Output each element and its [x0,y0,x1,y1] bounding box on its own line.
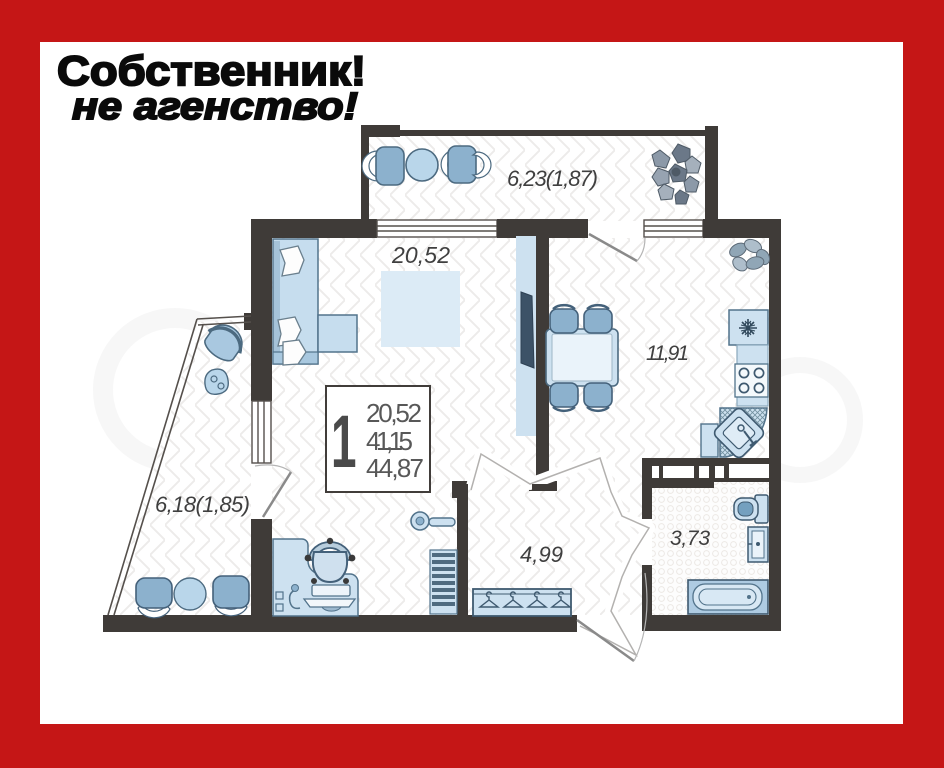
svg-text:6,23(1,87): 6,23(1,87) [507,166,598,191]
svg-text:4,99: 4,99 [520,542,563,567]
svg-text:41,15: 41,15 [366,426,413,456]
svg-text:3,73: 3,73 [670,527,710,550]
svg-text:44,87: 44,87 [366,453,424,483]
svg-text:11,91: 11,91 [646,342,689,365]
svg-text:20,52: 20,52 [391,242,450,268]
svg-text:6,18(1,85): 6,18(1,85) [155,492,250,517]
svg-text:не агенство!: не агенство! [72,86,358,128]
svg-text:1: 1 [331,401,357,484]
svg-text:20,52: 20,52 [366,398,422,428]
